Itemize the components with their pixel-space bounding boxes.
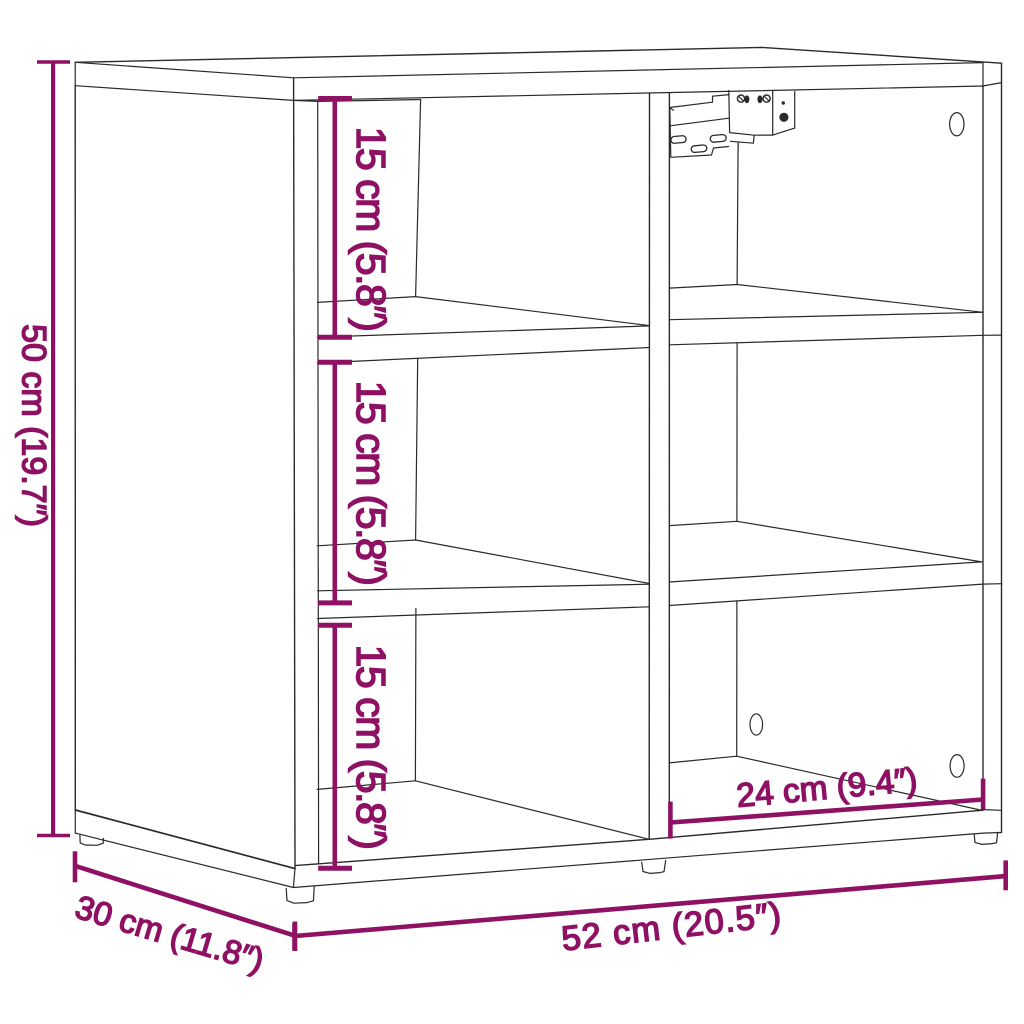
svg-text:15 cm (5.8″): 15 cm (5.8″) — [348, 127, 394, 331]
svg-text:15 cm (5.8″): 15 cm (5.8″) — [348, 645, 394, 849]
svg-text:15 cm (5.8″): 15 cm (5.8″) — [348, 381, 394, 585]
svg-text:30 cm (11.8″): 30 cm (11.8″) — [71, 888, 268, 979]
svg-text:50 cm (19.7″): 50 cm (19.7″) — [15, 324, 53, 527]
